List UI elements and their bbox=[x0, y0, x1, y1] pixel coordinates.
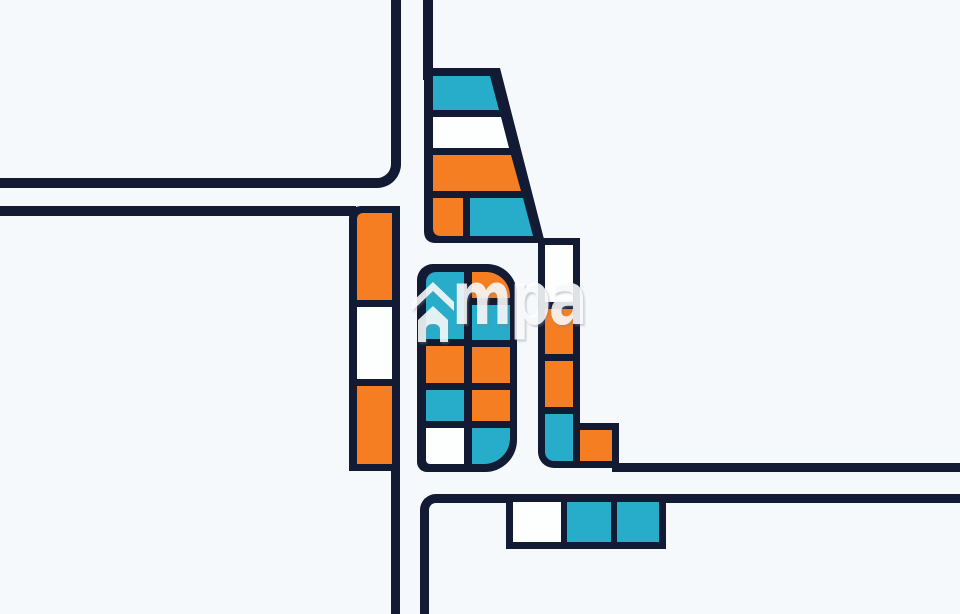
road-east-upper-horizontal bbox=[612, 463, 960, 472]
parcel-cell bbox=[433, 155, 521, 191]
road-corner-south bbox=[420, 494, 960, 614]
block-center bbox=[417, 264, 517, 472]
road-south-vertical bbox=[391, 466, 400, 614]
parcel-cell bbox=[580, 430, 612, 461]
parcel-cell bbox=[426, 272, 464, 339]
parcel-cell bbox=[426, 428, 464, 464]
parcel-cell bbox=[433, 117, 509, 148]
parcel-cell bbox=[545, 245, 573, 302]
parcel-cell bbox=[617, 502, 659, 542]
parcel-cell bbox=[472, 390, 510, 421]
parcel-cell bbox=[545, 361, 573, 407]
parcel-cell bbox=[470, 198, 533, 236]
block-top-trapezoid bbox=[415, 60, 565, 255]
block-bottom-row bbox=[506, 494, 666, 549]
parcel-cell bbox=[472, 428, 510, 464]
parcel-cell bbox=[426, 346, 464, 383]
parcel-cell bbox=[545, 414, 573, 461]
parcel-cell bbox=[357, 386, 392, 464]
parcel-cell bbox=[567, 502, 611, 542]
parcel-cell bbox=[433, 198, 463, 236]
parcel-cell bbox=[472, 305, 510, 340]
parcel-cell bbox=[357, 213, 392, 300]
parcel-cell bbox=[472, 347, 510, 383]
road-corner-northwest bbox=[0, 0, 401, 188]
road-west-horizontal bbox=[0, 206, 356, 216]
parcel-cell bbox=[513, 502, 561, 542]
parcel-cell bbox=[472, 272, 510, 298]
block-left-strip bbox=[349, 206, 400, 471]
parcel-cell bbox=[426, 390, 464, 421]
parcel-cell bbox=[357, 307, 392, 379]
block-right-strip-foot bbox=[573, 423, 619, 468]
parcel-cell bbox=[545, 309, 573, 354]
parcel-cell bbox=[433, 76, 499, 110]
parcel-map-canvas: mpa bbox=[0, 0, 960, 614]
